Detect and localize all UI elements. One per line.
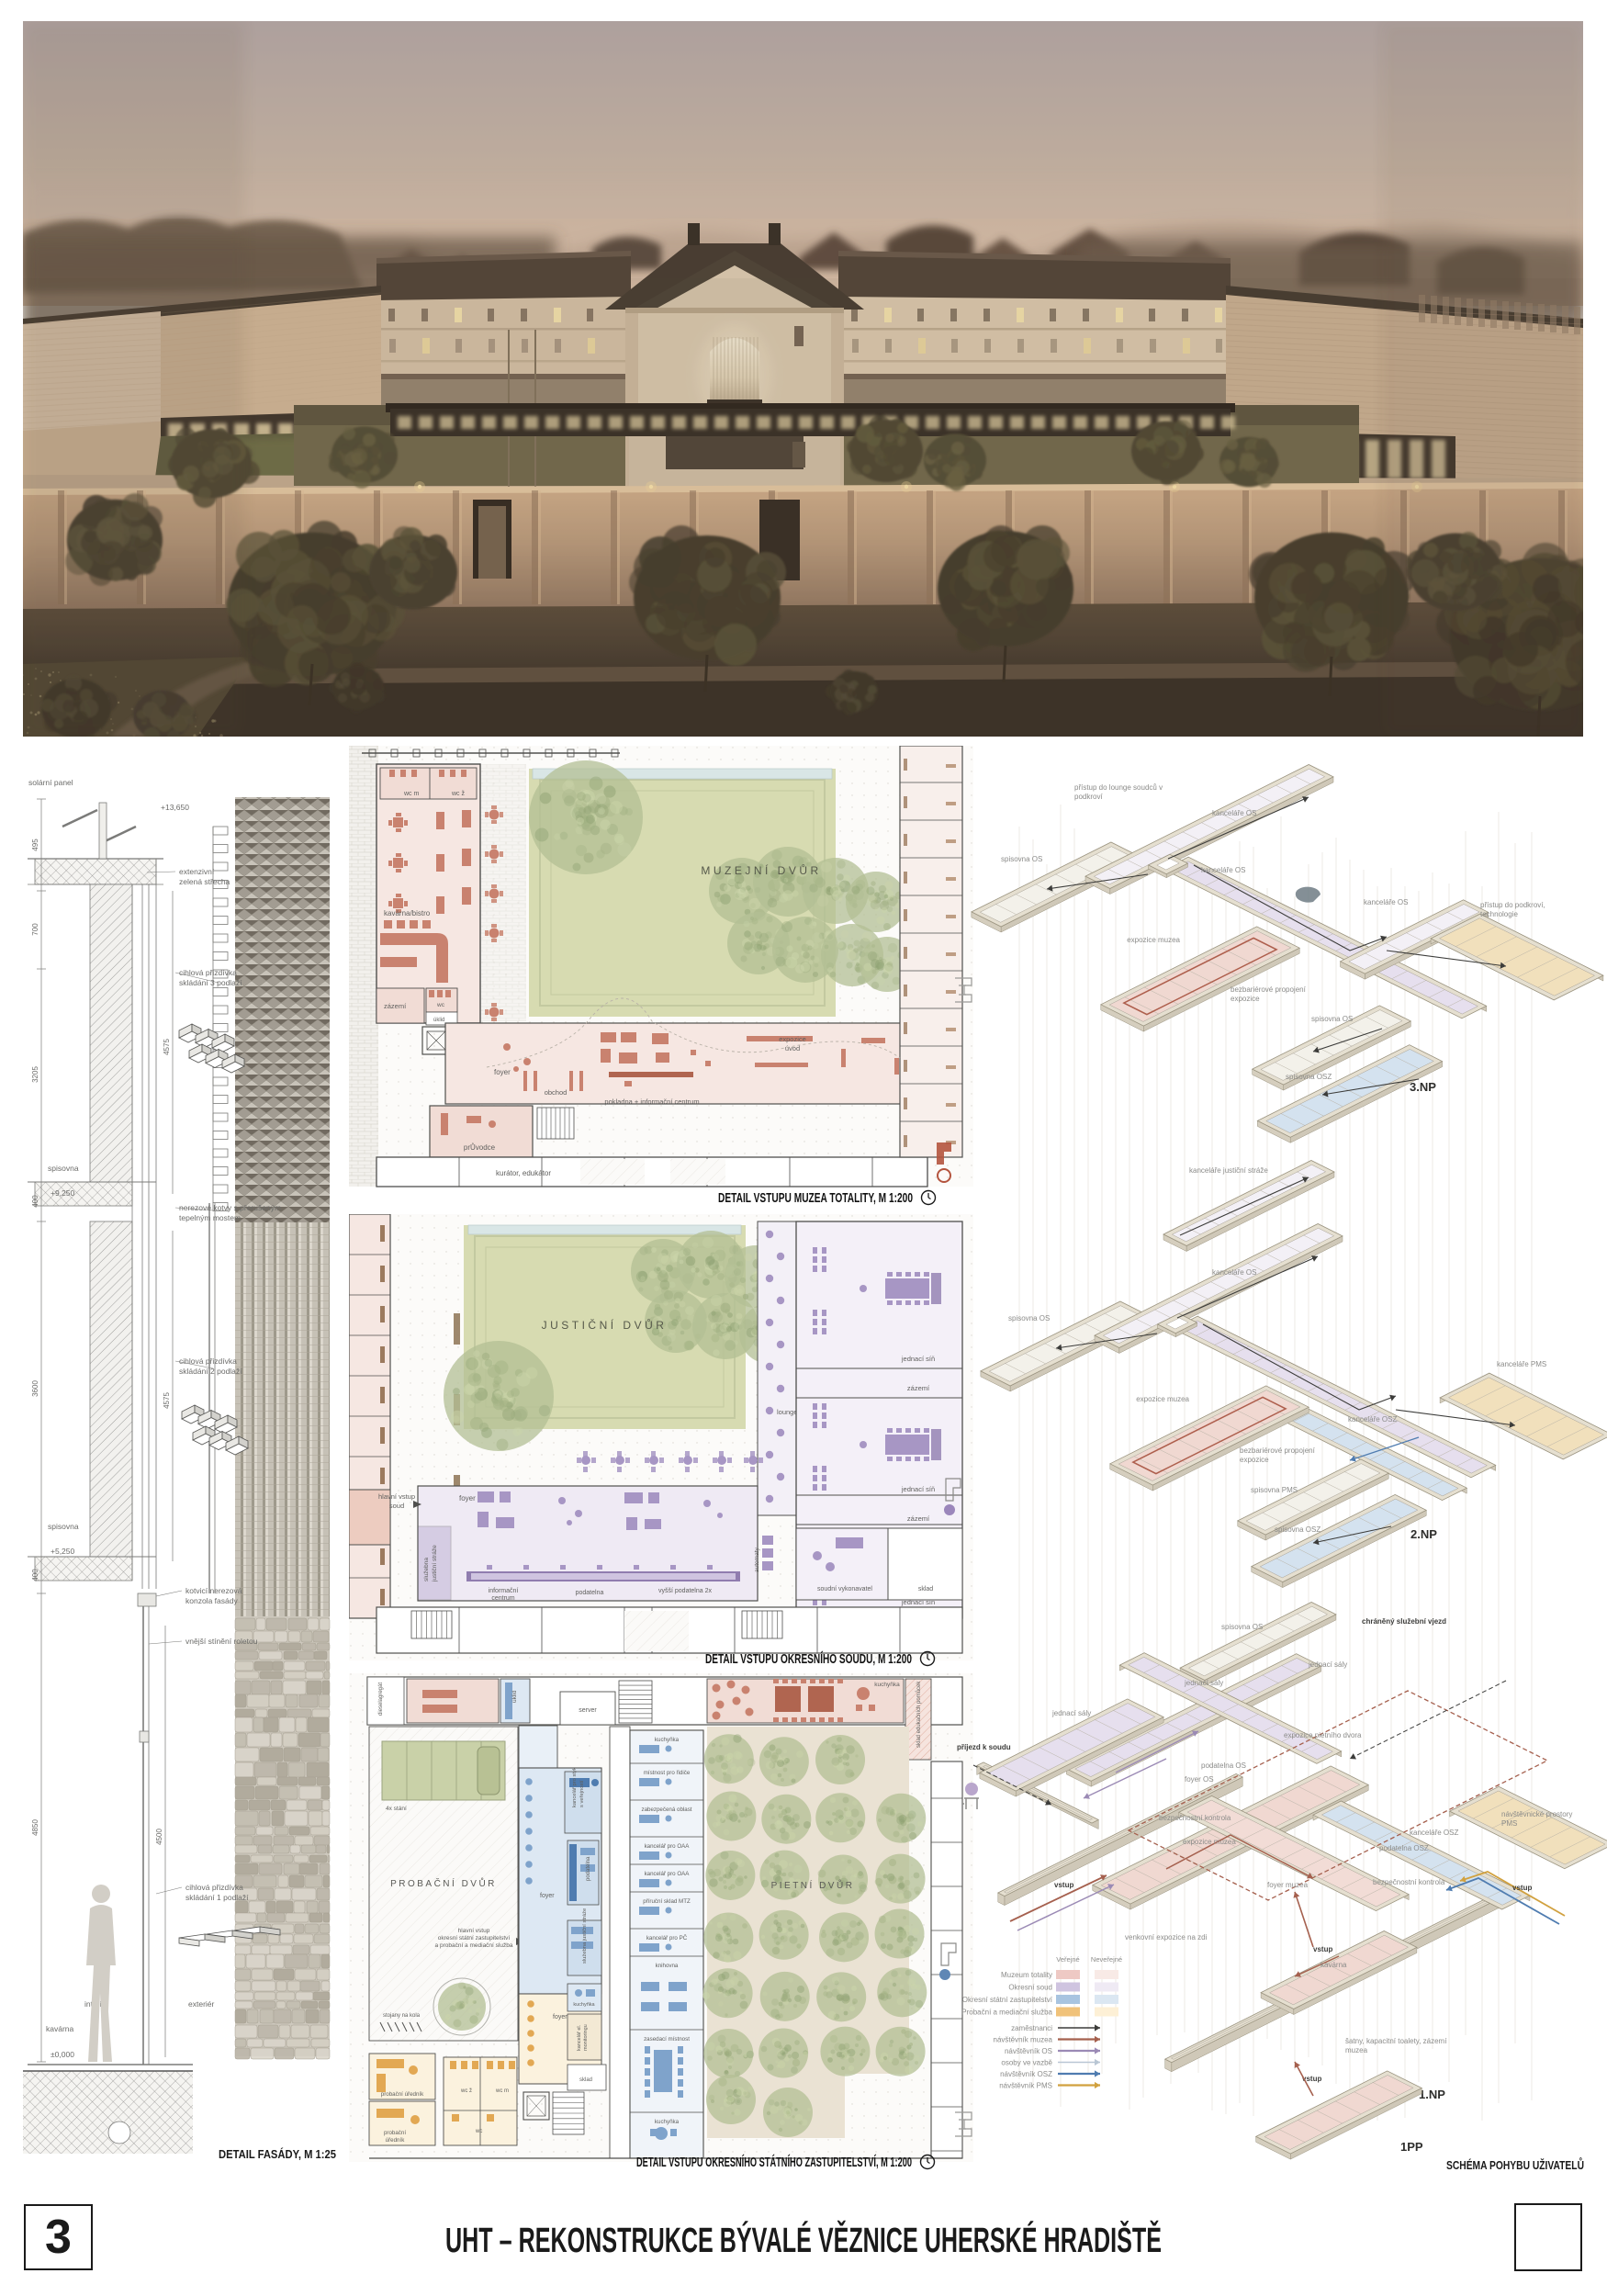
svg-text:wc: wc <box>436 1002 445 1008</box>
svg-text:1PP: 1PP <box>1400 2140 1423 2154</box>
svg-text:3600: 3600 <box>31 1380 39 1397</box>
svg-text:vyšší podatelna 2x: vyšší podatelna 2x <box>658 1588 712 1594</box>
svg-text:foyer: foyer <box>494 1068 511 1076</box>
svg-text:muzea: muzea <box>1345 2046 1368 2054</box>
svg-text:kurátor, edukátor: kurátor, edukátor <box>496 1169 551 1177</box>
svg-text:DETAIL VSTUPU MUZEA TOTALITY,: DETAIL VSTUPU MUZEA TOTALITY, M 1:200 <box>718 1191 913 1206</box>
svg-text:1.NP: 1.NP <box>1419 2088 1445 2101</box>
svg-text:spisovna: spisovna <box>48 1164 79 1173</box>
svg-text:soudní vykonavatel: soudní vykonavatel <box>817 1586 872 1593</box>
svg-text:Okresní státní zastupitelství: Okresní státní zastupitelství <box>962 1996 1053 2004</box>
svg-text:kavárna/bistro: kavárna/bistro <box>384 909 431 917</box>
svg-text:s veřejností: s veřejností <box>579 1780 585 1807</box>
svg-text:služebna justiční stráže: služebna justiční stráže <box>582 1908 588 1964</box>
svg-text:JUSTIČNÍ DVŮR: JUSTIČNÍ DVŮR <box>542 1318 668 1332</box>
svg-text:stojany na kola: stojany na kola <box>383 2013 421 2019</box>
svg-text:±0,000: ±0,000 <box>51 2050 74 2059</box>
svg-text:návštěvník muzea: návštěvník muzea <box>994 2036 1053 2044</box>
svg-text:kanceláře justiční stráže: kanceláře justiční stráže <box>1189 1166 1268 1175</box>
svg-text:spisovna OS: spisovna OS <box>1001 855 1042 863</box>
svg-text:zázemí: zázemí <box>907 1514 930 1523</box>
svg-text:extenzivní: extenzivní <box>179 867 215 876</box>
svg-text:podkroví: podkroví <box>1074 793 1103 801</box>
svg-text:skládání 1 podlaží: skládání 1 podlaží <box>185 1893 249 1902</box>
svg-text:spisovna OS: spisovna OS <box>1311 1015 1353 1023</box>
svg-text:cihlová přizdívka: cihlová přizdívka <box>185 1883 243 1892</box>
svg-text:šatny, kapacitní toalety, záze: šatny, kapacitní toalety, zázemí <box>1345 2037 1447 2045</box>
svg-text:podatelna OSZ: podatelna OSZ <box>1379 1844 1429 1852</box>
svg-text:kancelář pro PČ: kancelář pro PČ <box>646 1935 688 1941</box>
svg-text:bezpečnostní kontrola: bezpečnostní kontrola <box>1159 1814 1231 1822</box>
svg-text:a probační a mediační služba: a probační a mediační služba <box>435 1942 513 1949</box>
svg-text:4x stání: 4x stání <box>386 1806 407 1812</box>
svg-text:zázemí: zázemí <box>384 1002 407 1010</box>
svg-text:justiční stráže: justiční stráže <box>432 1545 438 1582</box>
svg-text:návštěvník OSZ: návštěvník OSZ <box>1000 2070 1052 2078</box>
svg-text:knihovna: knihovna <box>656 1963 679 1969</box>
svg-text:jednací sály: jednací sály <box>1308 1660 1347 1669</box>
svg-text:jednací síň: jednací síň <box>901 1355 935 1363</box>
svg-text:návštěvník PMS: návštěvník PMS <box>999 2082 1052 2090</box>
svg-text:spisovna PMS: spisovna PMS <box>1251 1486 1298 1494</box>
svg-text:příjezd k soudu: příjezd k soudu <box>957 1743 1011 1751</box>
svg-text:osoby ve vazbě: osoby ve vazbě <box>1001 2059 1052 2067</box>
svg-text:UHT – REKONSTRUKCE BÝVALÉ VĚZN: UHT – REKONSTRUKCE BÝVALÉ VĚZNICE UHERSK… <box>445 2219 1162 2260</box>
svg-text:kanceláře OS: kanceláře OS <box>1212 809 1256 817</box>
svg-text:3205: 3205 <box>31 1066 39 1083</box>
svg-text:kanceláře OSZ: kanceláře OSZ <box>1410 1829 1458 1837</box>
svg-text:700: 700 <box>31 923 39 936</box>
svg-text:návštěvnické prostory: návštěvnické prostory <box>1501 1810 1572 1818</box>
svg-text:jednací sály: jednací sály <box>1051 1709 1091 1717</box>
svg-text:monitoringu: monitoringu <box>583 2024 589 2051</box>
svg-text:místnost pro řidiče: místnost pro řidiče <box>644 1770 691 1776</box>
svg-text:tepelným mostem: tepelným mostem <box>179 1213 241 1222</box>
svg-text:kotvicí nerezová: kotvicí nerezová <box>185 1586 242 1595</box>
svg-text:Veřejné: Veřejné <box>1056 1955 1079 1964</box>
svg-text:sklad: sklad <box>918 1586 933 1593</box>
svg-text:okresní státní zastupitelství: okresní státní zastupitelství <box>438 1935 511 1941</box>
svg-text:služebna: služebna <box>423 1558 430 1581</box>
svg-text:4575: 4575 <box>163 1039 171 1055</box>
svg-text:obchod: obchod <box>545 1088 568 1097</box>
svg-text:wc ž: wc ž <box>451 791 466 797</box>
svg-text:bezbariérové propojení: bezbariérové propojení <box>1231 985 1307 994</box>
svg-text:foyer: foyer <box>553 2014 568 2020</box>
svg-text:kanceláře PMS: kanceláře PMS <box>1497 1360 1546 1368</box>
svg-text:wc m: wc m <box>495 2088 509 2094</box>
svg-text:centrum: centrum <box>491 1595 514 1602</box>
svg-text:4500: 4500 <box>155 1829 163 1845</box>
svg-text:úklid: úklid <box>433 1018 444 1023</box>
svg-text:SCHÉMA POHYBU UŽIVATELŮ: SCHÉMA POHYBU UŽIVATELŮ <box>1446 2157 1584 2172</box>
svg-text:spisovna OS: spisovna OS <box>1221 1623 1263 1631</box>
svg-text:DETAIL FASÁDY, M 1:25: DETAIL FASÁDY, M 1:25 <box>219 2147 336 2161</box>
svg-text:kavárna: kavárna <box>46 2024 74 2033</box>
svg-text:+5,250: +5,250 <box>51 1547 75 1556</box>
svg-text:kancelář pro OAA: kancelář pro OAA <box>645 1871 691 1877</box>
svg-text:kanceláře OS: kanceláře OS <box>1201 866 1245 874</box>
svg-text:jednací síň: jednací síň <box>901 1485 935 1493</box>
svg-text:wc m: wc m <box>403 791 420 797</box>
svg-text:kancelář el.: kancelář el. <box>577 2024 582 2051</box>
svg-text:kuchyňka: kuchyňka <box>655 2119 680 2125</box>
svg-text:spisovna OS: spisovna OS <box>1008 1314 1050 1322</box>
svg-text:technologie: technologie <box>1480 910 1518 918</box>
svg-text:expozice pietního dvora: expozice pietního dvora <box>1284 1731 1362 1739</box>
svg-text:venkovní expozice na zdi: venkovní expozice na zdi <box>1125 1933 1208 1941</box>
svg-text:úředník: úředník <box>386 2137 406 2144</box>
svg-text:expozice: expozice <box>1240 1456 1269 1464</box>
svg-text:konzola fasády: konzola fasády <box>185 1596 238 1605</box>
svg-text:400: 400 <box>31 1195 39 1208</box>
svg-text:chráněný služební vjezd: chráněný služební vjezd <box>1362 1617 1446 1626</box>
svg-text:Neveřejné: Neveřejné <box>1091 1955 1122 1964</box>
svg-text:expozice: expozice <box>779 1035 806 1043</box>
svg-text:nerezové kotvy s přerušeným: nerezové kotvy s přerušeným <box>179 1203 281 1212</box>
svg-text:hlavní vstup: hlavní vstup <box>378 1492 415 1501</box>
svg-text:Probační a mediační služba: Probační a mediační služba <box>961 2009 1052 2017</box>
svg-text:spisovna: spisovna <box>48 1522 79 1531</box>
svg-text:solární panel: solární panel <box>28 778 73 787</box>
svg-text:probační: probační <box>384 2130 406 2136</box>
svg-text:podatelna OS: podatelna OS <box>1201 1761 1246 1770</box>
svg-text:prŮvodce: prŮvodce <box>464 1143 496 1152</box>
svg-text:probační úředník: probační úředník <box>381 2091 424 2098</box>
svg-text:PIETNÍ DVŮR: PIETNÍ DVŮR <box>771 1879 855 1891</box>
svg-text:server: server <box>579 1707 597 1714</box>
svg-text:spisovna OSZ: spisovna OSZ <box>1275 1525 1320 1534</box>
svg-text:PMS: PMS <box>1501 1819 1517 1828</box>
svg-text:skládání 2 podlaží: skládání 2 podlaží <box>179 1367 242 1376</box>
svg-text:návštěvník OS: návštěvník OS <box>1005 2047 1052 2055</box>
svg-text:foyer OS: foyer OS <box>1185 1775 1214 1784</box>
svg-text:příruční sklad MTZ: příruční sklad MTZ <box>643 1898 691 1905</box>
svg-text:automaty: automaty <box>754 1548 760 1572</box>
svg-text:kuchyňka: kuchyňka <box>874 1682 900 1688</box>
svg-text:cihlová přizdívka: cihlová přizdívka <box>179 968 237 977</box>
svg-text:bezbariérové propojení: bezbariérové propojení <box>1240 1446 1316 1455</box>
svg-text:kancelář pro styk: kancelář pro styk <box>572 1767 578 1807</box>
svg-text:foyer: foyer <box>540 1893 555 1899</box>
svg-text:expozice muzea: expozice muzea <box>1136 1395 1189 1403</box>
svg-text:DETAIL VSTUPU OKRESNÍHO STÁTNÍ: DETAIL VSTUPU OKRESNÍHO STÁTNÍHO ZASTUPI… <box>636 2155 912 2170</box>
svg-text:400: 400 <box>31 1569 39 1581</box>
svg-text:kanceláře OS: kanceláře OS <box>1364 898 1408 906</box>
svg-text:podatelna: podatelna <box>576 1590 604 1596</box>
svg-text:kanceláře OS: kanceláře OS <box>1212 1268 1256 1277</box>
svg-text:Okresní soud: Okresní soud <box>1008 1984 1052 1992</box>
svg-text:PROBAČNÍ DVŮR: PROBAČNÍ DVŮR <box>390 1877 497 1889</box>
svg-text:hlavní vstup: hlavní vstup <box>458 1928 490 1934</box>
svg-text:+13,650: +13,650 <box>161 803 189 812</box>
svg-text:cihlová přizdívka: cihlová přizdívka <box>179 1356 237 1366</box>
svg-text:lounge: lounge <box>777 1408 798 1416</box>
svg-text:495: 495 <box>31 838 39 851</box>
svg-text:vnější stínění roletou: vnější stínění roletou <box>185 1637 258 1646</box>
svg-text:skládání 3 podlaží: skládání 3 podlaží <box>179 978 242 987</box>
svg-text:zázemí: zázemí <box>907 1384 930 1392</box>
svg-text:+9,250: +9,250 <box>51 1188 75 1198</box>
svg-text:wc ž: wc ž <box>460 2088 472 2094</box>
svg-text:expozice: expozice <box>1231 995 1260 1003</box>
svg-text:spisovna OSZ: spisovna OSZ <box>1286 1073 1332 1081</box>
svg-text:zabezpečená oblast: zabezpečená oblast <box>641 1806 691 1813</box>
svg-text:sklad edukačních pomůcek: sklad edukačních pomůcek <box>916 1681 922 1748</box>
svg-text:MUZEJNÍ DVŮR: MUZEJNÍ DVŮR <box>701 863 821 877</box>
svg-text:foyer: foyer <box>459 1494 476 1503</box>
svg-text:informační: informační <box>489 1588 519 1594</box>
svg-text:dieselagregát: dieselagregát <box>378 1683 384 1716</box>
svg-text:pokladna + informační centrum: pokladna + informační centrum <box>604 1097 699 1106</box>
svg-text:4575: 4575 <box>163 1392 171 1409</box>
svg-text:Muzeum totality: Muzeum totality <box>1001 1971 1052 1979</box>
svg-text:zasedací místnost: zasedací místnost <box>644 2036 690 2043</box>
svg-text:2.NP: 2.NP <box>1410 1527 1437 1541</box>
svg-text:kancelář pro OAA: kancelář pro OAA <box>645 1843 691 1850</box>
svg-text:vstup: vstup <box>1054 1881 1073 1889</box>
svg-text:soud: soud <box>389 1502 404 1510</box>
svg-text:sklad: sklad <box>579 2077 592 2083</box>
svg-text:kanceláře OSZ: kanceláře OSZ <box>1348 1415 1397 1424</box>
svg-text:exteriér: exteriér <box>188 1999 215 2009</box>
svg-text:kavárna: kavárna <box>1320 1961 1347 1969</box>
svg-text:foyer muzea: foyer muzea <box>1267 1881 1309 1889</box>
svg-text:kuchyňka: kuchyňka <box>655 1737 680 1743</box>
svg-text:úklid: úklid <box>511 1690 518 1703</box>
svg-text:vstup: vstup <box>1512 1884 1532 1892</box>
svg-text:podatelna: podatelna <box>586 1856 591 1881</box>
svg-text:přístup do podkroví,: přístup do podkroví, <box>1480 901 1545 909</box>
svg-text:wc: wc <box>475 2129 482 2134</box>
svg-text:jednací sály: jednací sály <box>1184 1679 1223 1687</box>
svg-text:zaměstnanci: zaměstnanci <box>1011 2024 1052 2032</box>
svg-text:vstup: vstup <box>1313 1945 1332 1953</box>
svg-text:kuchyňka: kuchyňka <box>573 2002 595 2008</box>
svg-text:4850: 4850 <box>31 1819 39 1836</box>
svg-text:zelená střecha: zelená střecha <box>179 877 230 886</box>
svg-text:bezpečnostní kontrola: bezpečnostní kontrola <box>1373 1878 1445 1886</box>
svg-text:expozice muzea: expozice muzea <box>1127 936 1180 944</box>
svg-text:expozice muzea: expozice muzea <box>1183 1838 1236 1846</box>
svg-text:3.NP: 3.NP <box>1410 1080 1436 1094</box>
svg-text:přístup do lounge soudců v: přístup do lounge soudců v <box>1074 783 1163 792</box>
